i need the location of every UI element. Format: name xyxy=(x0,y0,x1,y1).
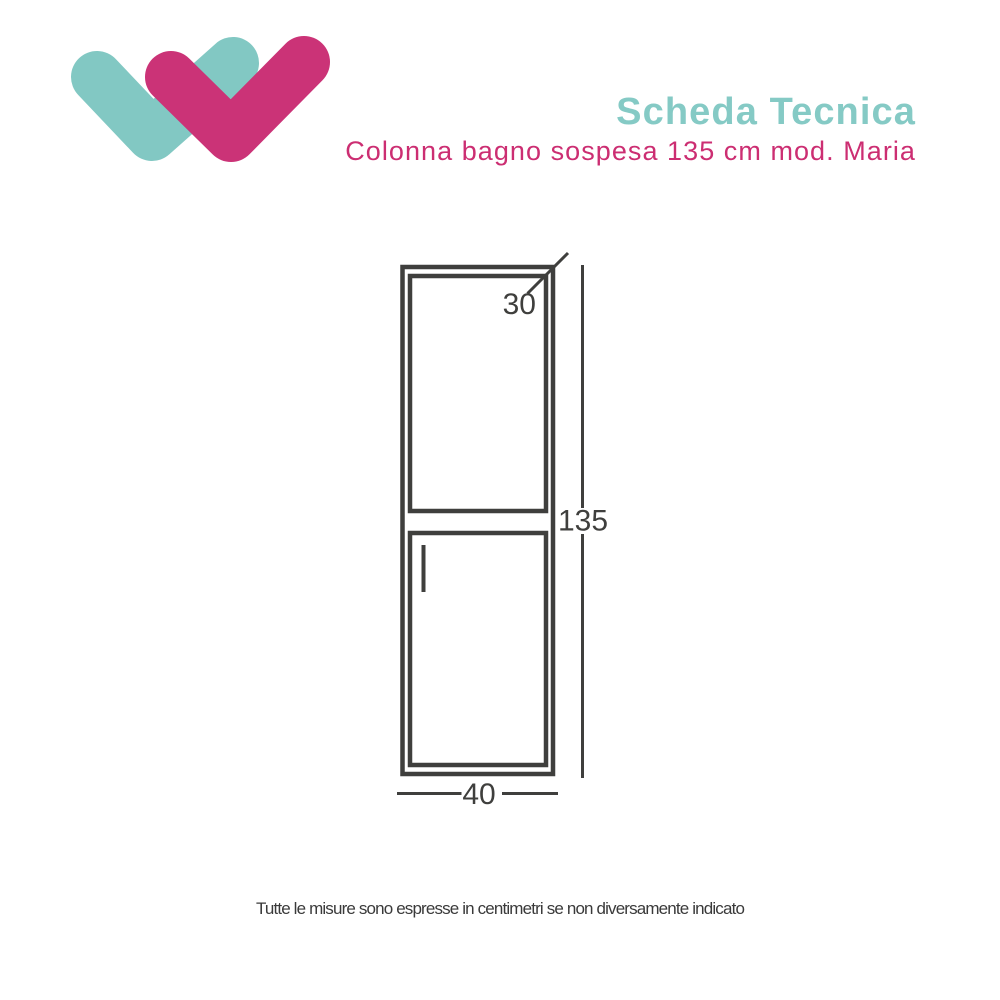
svg-text:30: 30 xyxy=(503,288,536,321)
svg-text:Scheda Tecnica: Scheda Tecnica xyxy=(616,91,916,133)
svg-text:40: 40 xyxy=(462,778,495,811)
svg-text:Tutte le misure sono espresse: Tutte le misure sono espresse in centime… xyxy=(256,899,745,918)
svg-text:Colonna bagno sospesa 135 cm m: Colonna bagno sospesa 135 cm mod. Maria xyxy=(345,136,916,166)
svg-text:135: 135 xyxy=(558,505,608,538)
